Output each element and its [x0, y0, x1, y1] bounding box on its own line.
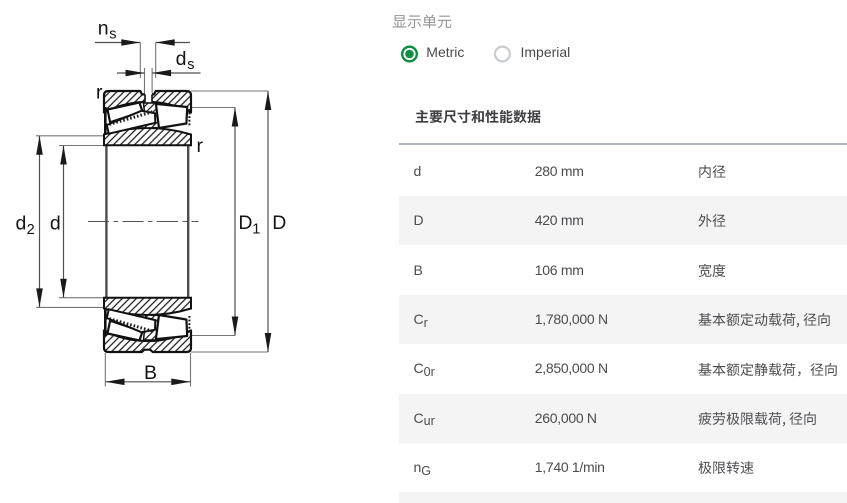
svg-text:d: d: [16, 212, 27, 234]
svg-text:D: D: [238, 212, 252, 234]
svg-text:d: d: [176, 48, 187, 70]
svg-text:B: B: [144, 362, 157, 384]
svg-text:r: r: [96, 81, 103, 103]
svg-text:1: 1: [252, 222, 260, 238]
svg-text:n: n: [98, 17, 109, 39]
svg-text:d: d: [50, 212, 61, 234]
svg-text:2: 2: [27, 222, 35, 238]
svg-text:D: D: [272, 212, 286, 234]
svg-text:s: s: [109, 26, 116, 42]
svg-text:s: s: [187, 57, 194, 73]
svg-text:r: r: [197, 135, 204, 157]
